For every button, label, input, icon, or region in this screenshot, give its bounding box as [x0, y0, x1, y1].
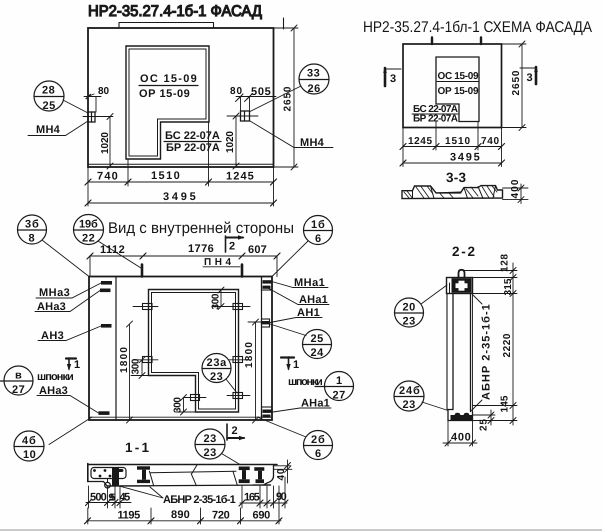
svg-text:300: 300: [173, 397, 184, 413]
svg-text:80: 80: [98, 86, 109, 97]
svg-text:1776: 1776: [188, 243, 214, 255]
svg-text:90: 90: [276, 491, 287, 503]
svg-text:1510: 1510: [151, 170, 180, 182]
svg-text:23: 23: [204, 447, 217, 459]
svg-text:2650: 2650: [511, 70, 522, 95]
svg-text:ОС 15-09: ОС 15-09: [140, 73, 197, 85]
svg-text:300: 300: [131, 358, 142, 374]
svg-text:740: 740: [481, 136, 499, 147]
svg-text:20: 20: [403, 302, 416, 314]
svg-text:25: 25: [43, 100, 56, 112]
svg-text:8: 8: [29, 233, 35, 245]
svg-text:1195: 1195: [118, 510, 141, 522]
svg-text:145: 145: [500, 395, 511, 412]
svg-text:505: 505: [251, 86, 271, 98]
svg-text:24б: 24б: [399, 385, 420, 397]
svg-text:25: 25: [479, 419, 490, 431]
svg-text:23: 23: [403, 316, 416, 328]
svg-text:ОР 15-09: ОР 15-09: [139, 88, 190, 100]
svg-text:95: 95: [109, 493, 116, 504]
svg-text:23: 23: [403, 399, 416, 411]
svg-text:1112: 1112: [100, 244, 125, 256]
svg-text:6: 6: [315, 448, 321, 460]
svg-text:1020: 1020: [225, 131, 236, 153]
svg-text:Вид с внутренней стороны: Вид с внутренней стороны: [108, 220, 294, 237]
svg-text:АБНР 2-35-1б-1: АБНР 2-35-1б-1: [481, 304, 493, 400]
svg-text:1245: 1245: [226, 171, 254, 183]
svg-text:500: 500: [90, 492, 107, 504]
svg-text:ОР 15-09: ОР 15-09: [438, 86, 479, 97]
svg-text:МН4: МН4: [36, 124, 61, 136]
svg-text:80: 80: [230, 86, 242, 97]
svg-text:26: 26: [308, 83, 321, 95]
svg-text:1: 1: [293, 359, 299, 371]
svg-text:24: 24: [311, 347, 325, 359]
svg-text:690: 690: [253, 510, 271, 522]
svg-text:607: 607: [248, 244, 267, 256]
svg-text:890: 890: [171, 509, 190, 521]
svg-text:БР 22-07А: БР 22-07А: [413, 114, 458, 125]
svg-text:в: в: [15, 370, 22, 382]
svg-text:НР2-35.27.4-1б-1 ФАСАД: НР2-35.27.4-1б-1 ФАСАД: [88, 3, 262, 20]
svg-text:33: 33: [307, 68, 320, 80]
svg-text:НР2-35.27.4-1бл-1 СХЕМА ФАСАДА: НР2-35.27.4-1бл-1 СХЕМА ФАСАДА: [363, 19, 593, 36]
svg-text:23: 23: [210, 371, 223, 383]
svg-text:1510: 1510: [445, 136, 470, 147]
svg-text:4б: 4б: [22, 435, 36, 447]
svg-text:23а: 23а: [207, 357, 228, 369]
svg-text:ОС 15-09: ОС 15-09: [438, 71, 479, 82]
svg-text:БР 22-07А: БР 22-07А: [166, 142, 220, 154]
svg-text:3б: 3б: [25, 219, 39, 231]
svg-text:25: 25: [311, 333, 324, 345]
svg-text:3: 3: [527, 72, 533, 84]
svg-text:400: 400: [451, 432, 471, 444]
svg-text:19б: 19б: [79, 219, 98, 231]
svg-text:2-2: 2-2: [452, 244, 475, 259]
svg-text:400: 400: [510, 179, 521, 198]
svg-text:1: 1: [336, 375, 342, 387]
svg-text:6: 6: [315, 233, 321, 245]
svg-text:1800: 1800: [244, 342, 255, 368]
svg-text:БС 22-07А: БС 22-07А: [165, 130, 220, 142]
svg-text:2: 2: [229, 241, 235, 253]
svg-text:300: 300: [211, 293, 222, 309]
svg-text:1020: 1020: [100, 132, 111, 154]
svg-text:27: 27: [12, 384, 25, 396]
svg-text:27: 27: [333, 390, 346, 402]
svg-text:740: 740: [97, 171, 118, 183]
svg-text:2650: 2650: [283, 86, 294, 111]
svg-text:1-1: 1-1: [125, 440, 149, 455]
svg-text:3495: 3495: [450, 152, 480, 164]
svg-text:2220: 2220: [502, 333, 513, 357]
svg-text:165: 165: [244, 492, 260, 504]
svg-text:2б: 2б: [311, 434, 325, 446]
svg-text:10: 10: [23, 449, 36, 461]
svg-text:3-3: 3-3: [446, 170, 466, 185]
svg-text:28: 28: [42, 85, 55, 97]
svg-text:1: 1: [74, 359, 80, 371]
svg-text:3: 3: [390, 73, 396, 85]
svg-text:АБНР 2-35-1б-1: АБНР 2-35-1б-1: [163, 494, 236, 506]
svg-text:22: 22: [82, 233, 95, 245]
svg-text:315: 315: [503, 278, 514, 295]
svg-text:720: 720: [212, 510, 230, 522]
svg-text:1800: 1800: [119, 347, 130, 373]
svg-text:1245: 1245: [408, 136, 432, 147]
svg-text:1б: 1б: [311, 219, 325, 231]
svg-text:23: 23: [204, 433, 217, 445]
svg-text:128: 128: [500, 254, 511, 272]
svg-text:МНа3: МНа3: [39, 287, 70, 299]
svg-text:2: 2: [232, 425, 238, 437]
svg-text:шпонки: шпонки: [37, 371, 74, 383]
svg-text:45: 45: [120, 492, 131, 504]
